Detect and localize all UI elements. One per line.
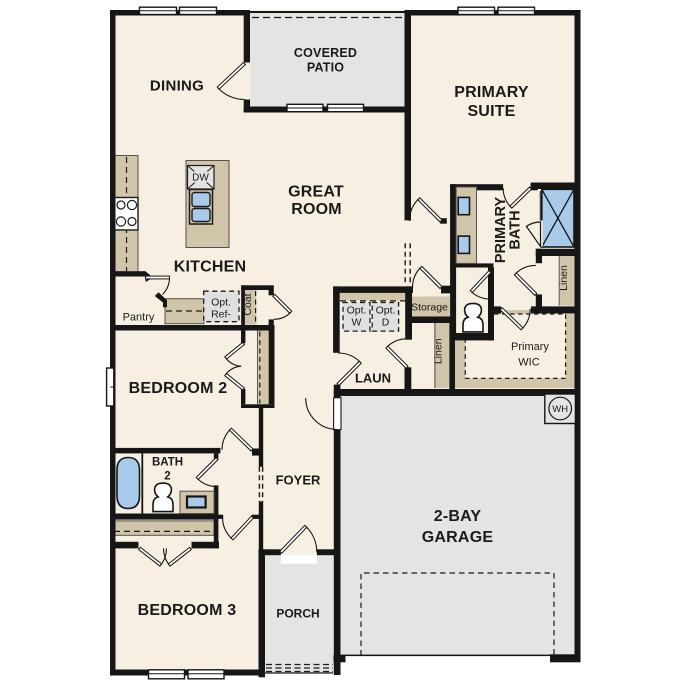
svg-text:PRIMARY: PRIMARY (454, 84, 529, 101)
svg-text:Primary: Primary (511, 341, 549, 353)
svg-text:Opt.: Opt. (211, 297, 231, 309)
svg-text:WIC: WIC (518, 357, 539, 369)
svg-text:GARAGE: GARAGE (422, 529, 494, 546)
svg-text:BEDROOM 3: BEDROOM 3 (138, 602, 237, 619)
svg-text:PORCH: PORCH (276, 607, 319, 621)
svg-text:COVERED: COVERED (294, 46, 357, 60)
svg-text:W: W (352, 317, 362, 329)
svg-text:Opt.: Opt. (347, 305, 367, 317)
svg-text:2: 2 (164, 471, 170, 483)
svg-text:BATH: BATH (508, 210, 524, 249)
svg-text:Linen: Linen (558, 265, 570, 291)
svg-text:WH: WH (552, 404, 568, 415)
svg-text:DINING: DINING (150, 78, 204, 95)
svg-text:ROOM: ROOM (291, 201, 342, 218)
svg-text:2-BAY: 2-BAY (434, 508, 482, 525)
svg-text:FOYER: FOYER (276, 473, 321, 488)
svg-text:Pantry: Pantry (123, 312, 155, 324)
svg-text:D: D (382, 317, 390, 329)
svg-text:Ref-: Ref- (211, 309, 231, 321)
svg-text:GREAT: GREAT (288, 184, 344, 201)
svg-text:DW: DW (192, 173, 209, 184)
svg-text:Linen: Linen (433, 338, 445, 364)
svg-text:KITCHEN: KITCHEN (174, 259, 247, 276)
svg-text:PATIO: PATIO (307, 61, 344, 75)
svg-text:BATH: BATH (152, 457, 183, 469)
svg-text:Storage: Storage (411, 302, 448, 314)
svg-text:Opt.: Opt. (376, 305, 396, 317)
svg-text:LAUN: LAUN (355, 371, 391, 386)
svg-text:BEDROOM 2: BEDROOM 2 (129, 380, 228, 397)
svg-text:SUITE: SUITE (467, 103, 515, 120)
